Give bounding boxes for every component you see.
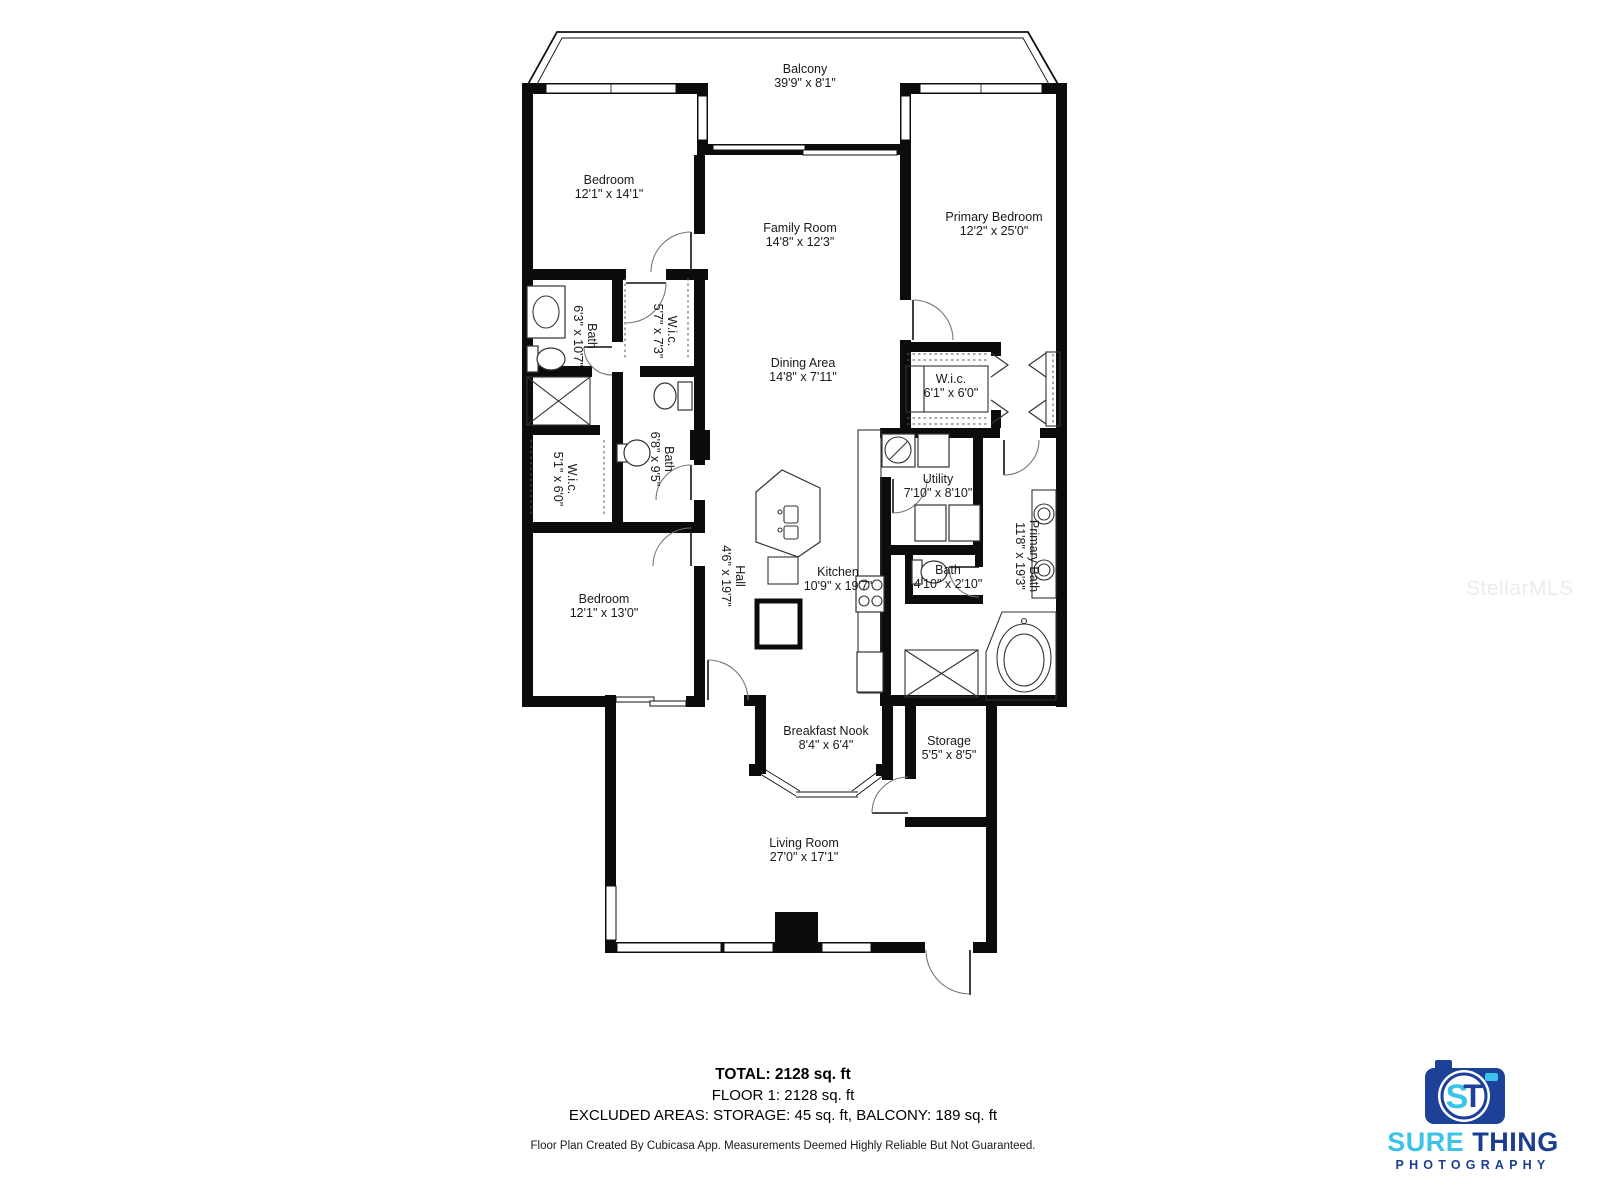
svg-text:6'1" x 6'0": 6'1" x 6'0" xyxy=(924,386,979,400)
svg-text:Bedroom: Bedroom xyxy=(579,592,630,606)
svg-text:39'9" x 8'1": 39'9" x 8'1" xyxy=(774,76,836,90)
svg-text:6'3" x 10'7": 6'3" x 10'7" xyxy=(571,305,585,367)
room-label-dining-area: Dining Area 14'8" x 7'11" xyxy=(769,356,837,384)
toilet-fixture xyxy=(527,346,538,372)
pantry-cabinet xyxy=(757,601,800,647)
svg-text:14'8" x 12'3": 14'8" x 12'3" xyxy=(766,235,835,249)
svg-text:12'1" x 13'0": 12'1" x 13'0" xyxy=(570,606,639,620)
bath1-fixtures xyxy=(527,286,565,372)
svg-text:W.i.c.: W.i.c. xyxy=(665,316,679,347)
sure-thing-photography-logo: S T SURE THING PHOTOGRAPHY xyxy=(1378,1050,1568,1172)
svg-text:Bath: Bath xyxy=(585,323,599,349)
room-label-breakfast-nook: Breakfast Nook 8'4" x 6'4" xyxy=(783,724,869,752)
svg-text:Bath: Bath xyxy=(662,446,676,472)
svg-text:4'6" x 19'7": 4'6" x 19'7" xyxy=(719,545,733,607)
room-label-wic-3: W.i.c. 5'1" x 6'0" xyxy=(551,452,579,507)
fridge-fixture xyxy=(857,652,883,692)
sliding-door xyxy=(616,697,654,702)
svg-text:10'9" x 19'7": 10'9" x 19'7" xyxy=(804,579,873,593)
kitchen-island-fixture xyxy=(756,470,820,557)
room-label-bath-2: Bath 6'8" x 9'5" xyxy=(648,432,676,487)
svg-text:6'8" x 9'5": 6'8" x 9'5" xyxy=(648,432,662,487)
svg-text:7'10" x 8'10": 7'10" x 8'10" xyxy=(904,486,973,500)
total-area-text: TOTAL: 2128 sq. ft xyxy=(383,1066,1183,1084)
svg-text:Living Room: Living Room xyxy=(769,836,838,850)
room-label-hall: Hall 4'6" x 19'7" xyxy=(719,545,747,607)
logo-brand-name: SURE THING xyxy=(1378,1128,1568,1156)
svg-text:Family Room: Family Room xyxy=(763,221,837,235)
toilet-fixture xyxy=(678,382,692,410)
floor-plan-drawing: Balcony 39'9" x 8'1" Bedroom 12'1" x 14'… xyxy=(0,0,1600,1200)
room-label-balcony: Balcony 39'9" x 8'1" xyxy=(774,62,836,90)
room-label-utility: Utility 7'10" x 8'10" xyxy=(904,472,973,500)
balcony-slider xyxy=(713,145,805,150)
svg-text:5'7" x 7'3": 5'7" x 7'3" xyxy=(651,304,665,359)
svg-text:27'0" x 17'1": 27'0" x 17'1" xyxy=(770,850,839,864)
room-label-bath-1: Bath 6'3" x 10'7" xyxy=(571,305,599,367)
svg-text:Utility: Utility xyxy=(923,472,954,486)
shower-fixture-left xyxy=(527,377,590,425)
logo-subtitle: PHOTOGRAPHY xyxy=(1378,1158,1568,1172)
svg-text:12'1" x 14'1": 12'1" x 14'1" xyxy=(575,187,644,201)
svg-text:12'2" x 25'0": 12'2" x 25'0" xyxy=(960,224,1029,238)
svg-text:5'5" x 8'5": 5'5" x 8'5" xyxy=(922,748,977,762)
svg-text:W.i.c.: W.i.c. xyxy=(565,464,579,495)
room-label-bedroom-1: Bedroom 12'1" x 14'1" xyxy=(575,173,644,201)
svg-text:Storage: Storage xyxy=(927,734,971,748)
area-summary: TOTAL: 2128 sq. ft FLOOR 1: 2128 sq. ft … xyxy=(383,1066,1183,1152)
room-label-primary-bedroom: Primary Bedroom 12'2" x 25'0" xyxy=(945,210,1042,238)
floor-area-text: FLOOR 1: 2128 sq. ft xyxy=(383,1087,1183,1104)
svg-text:Bath: Bath xyxy=(935,563,961,577)
excluded-areas-text: EXCLUDED AREAS: STORAGE: 45 sq. ft, BALC… xyxy=(383,1107,1183,1124)
room-label-primary-bath: Primary Bath 11'8" x 19'3" xyxy=(1013,520,1041,592)
svg-text:11'8" x 19'3": 11'8" x 19'3" xyxy=(1013,522,1027,590)
room-label-storage: Storage 5'5" x 8'5" xyxy=(922,734,977,762)
disclaimer-text: Floor Plan Created By Cubicasa App. Meas… xyxy=(383,1140,1183,1152)
floor-plan-page: { "rooms": [ {"id":"balcony","name":"Bal… xyxy=(0,0,1600,1200)
svg-text:Primary Bath: Primary Bath xyxy=(1027,520,1041,592)
svg-text:Kitchen: Kitchen xyxy=(817,565,859,579)
svg-text:Balcony: Balcony xyxy=(783,62,828,76)
svg-text:Hall: Hall xyxy=(733,565,747,587)
camera-icon: S T xyxy=(1378,1050,1568,1128)
sink-fixture xyxy=(624,440,650,466)
svg-text:Breakfast Nook: Breakfast Nook xyxy=(783,724,869,738)
room-label-wic-2: W.i.c. 6'1" x 6'0" xyxy=(924,372,979,400)
mls-watermark: StellarMLS xyxy=(1466,577,1574,601)
kitchen-fixtures xyxy=(756,430,884,693)
svg-text:W.i.c.: W.i.c. xyxy=(936,372,967,386)
svg-text:Dining Area: Dining Area xyxy=(771,356,836,370)
room-label-living-room: Living Room 27'0" x 17'1" xyxy=(769,836,838,864)
fireplace xyxy=(775,912,818,952)
bifold-door xyxy=(991,353,1008,377)
svg-text:T: T xyxy=(1463,1078,1483,1114)
svg-text:4'10" x 2'10": 4'10" x 2'10" xyxy=(914,577,983,591)
svg-text:5'1" x 6'0": 5'1" x 6'0" xyxy=(551,452,565,507)
svg-text:8'4" x 6'4": 8'4" x 6'4" xyxy=(799,738,854,752)
room-label-wic-1: W.i.c. 5'7" x 7'3" xyxy=(651,304,679,359)
svg-text:14'8" x 7'11": 14'8" x 7'11" xyxy=(769,370,837,384)
dryer-fixture xyxy=(918,434,949,467)
room-label-family-room: Family Room 14'8" x 12'3" xyxy=(763,221,837,249)
room-label-bedroom-2: Bedroom 12'1" x 13'0" xyxy=(570,592,639,620)
room-labels: Balcony 39'9" x 8'1" Bedroom 12'1" x 14'… xyxy=(551,62,1043,864)
svg-text:Bedroom: Bedroom xyxy=(584,173,635,187)
room-label-kitchen: Kitchen 10'9" x 19'7" xyxy=(804,565,873,593)
svg-text:Primary Bedroom: Primary Bedroom xyxy=(945,210,1042,224)
